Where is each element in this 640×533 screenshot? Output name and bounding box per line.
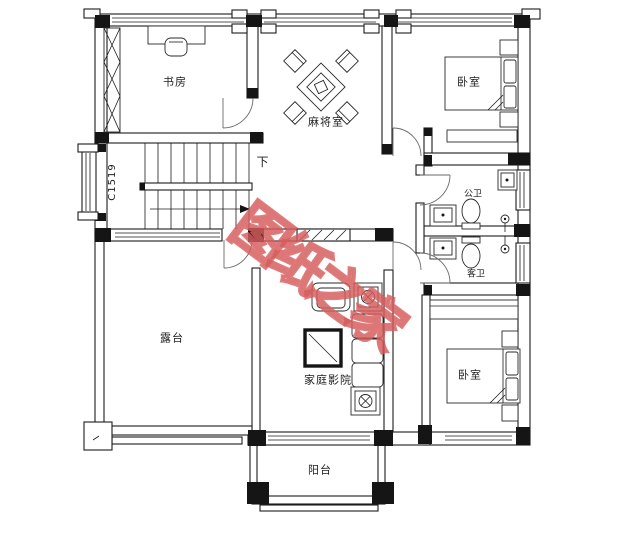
staircase [140, 143, 252, 229]
nightstand-icon [500, 40, 518, 55]
mahjong-table-icon [284, 50, 359, 125]
room-label-bedroom-top: 卧室 [457, 77, 481, 88]
sink-icon [430, 205, 456, 226]
room-label-study: 书房 [163, 77, 187, 88]
sofa-icon [352, 314, 383, 387]
armchair-icon [312, 283, 350, 311]
bathroom-fixtures [430, 170, 517, 268]
toilet-icon [462, 237, 480, 268]
bed-top-icon [445, 40, 518, 142]
room-label-bath-public: 公卫 [464, 191, 482, 200]
nightstand-icon [502, 405, 518, 421]
nightstand-icon [500, 112, 518, 127]
stair-direction-label: 下 [256, 156, 269, 168]
shower-icon [501, 236, 509, 253]
room-label-bedroom-bottom: 卧室 [458, 370, 482, 381]
chair-icon [165, 38, 187, 56]
room-label-bath-guest: 客卫 [467, 271, 485, 280]
room-label-terrace: 露台 [160, 333, 184, 344]
window-code-label: C1519 [108, 163, 118, 200]
floor-plan: 书房 麻将室 卧室 公卫 客卫 卧室 露台 家庭影院 阳台 下 C1519 图纸… [0, 0, 640, 533]
room-label-mahjong: 麻将室 [308, 117, 344, 128]
room-label-home-theater: 家庭影院 [304, 375, 352, 386]
toilet-icon [462, 199, 480, 229]
speaker-icon [351, 387, 380, 415]
nightstand-icon [502, 331, 518, 347]
bench-icon [447, 130, 517, 142]
stair-direction-arrow-icon [240, 205, 250, 213]
balcony-railing [250, 445, 385, 511]
bedroom-bottom-furniture [430, 300, 520, 421]
wardrobe-icon [430, 300, 518, 319]
floor-plan-drawing [0, 0, 640, 533]
speaker-icon [354, 283, 382, 311]
room-label-balcony: 阳台 [308, 465, 332, 476]
home-theater-furniture [305, 283, 383, 415]
washer-icon [498, 170, 517, 190]
study-furniture [104, 26, 205, 132]
